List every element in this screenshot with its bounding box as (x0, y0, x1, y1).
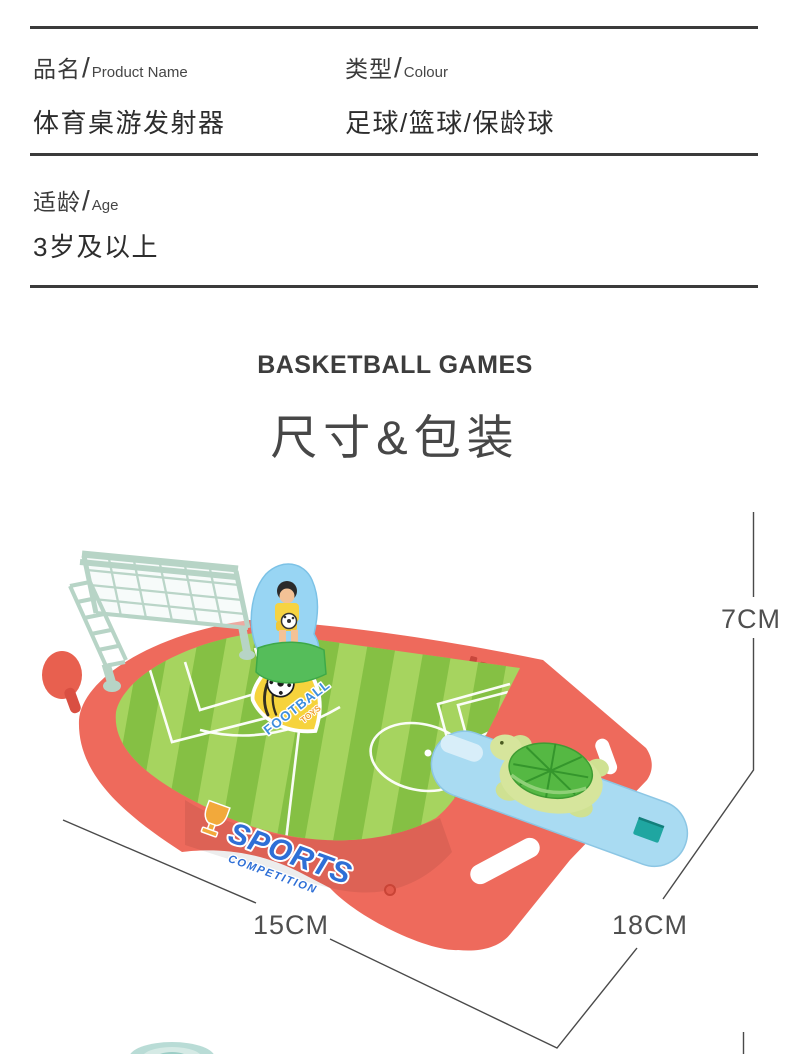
product-name-label: 品名/Product Name (33, 50, 188, 84)
age-label: 适龄/Age (33, 183, 118, 217)
product-name-value: 体育桌游发射器 (33, 103, 226, 140)
divider-top (30, 26, 758, 29)
product-name-label-cn: 品名 (33, 50, 81, 84)
age-label-cn: 适龄 (33, 183, 81, 217)
keeper-stand (256, 642, 326, 683)
dim-line-18cm (330, 939, 637, 1048)
divider-bottom (30, 285, 758, 288)
product-name-label-en: Product Name (92, 64, 188, 81)
next-product-peek (129, 1042, 215, 1054)
dim-label-7cm: 7CM (721, 604, 781, 634)
colour-label: 类型/Colour (345, 50, 448, 84)
age-value: 3岁及以上 (33, 227, 159, 264)
colour-label-cn: 类型 (345, 50, 393, 84)
dim-label-15cm: 15CM (253, 910, 329, 940)
section-title: 尺寸&包装 (0, 399, 790, 468)
label-separator: / (82, 52, 90, 84)
product-detail-page: 品名/Product Name 类型/Colour 体育桌游发射器 足球/篮球/… (0, 0, 790, 1054)
label-separator: / (82, 185, 90, 217)
dim-line-7cm-bottom (663, 638, 754, 899)
age-label-en: Age (92, 197, 119, 214)
goalkeeper-figure (251, 564, 326, 683)
section-eyebrow: BASKETBALL GAMES (0, 351, 790, 380)
base-screw-hole (385, 885, 395, 895)
dim-label-18cm: 18CM (612, 910, 688, 940)
keeper-face (280, 589, 295, 604)
product-photo: FOOTBALL TOYS (0, 490, 790, 1054)
base-slot-left (63, 686, 82, 714)
label-separator: / (394, 52, 402, 84)
divider-middle (30, 153, 758, 156)
colour-label-en: Colour (404, 64, 448, 81)
colour-value: 足球/篮球/保龄球 (345, 103, 555, 140)
